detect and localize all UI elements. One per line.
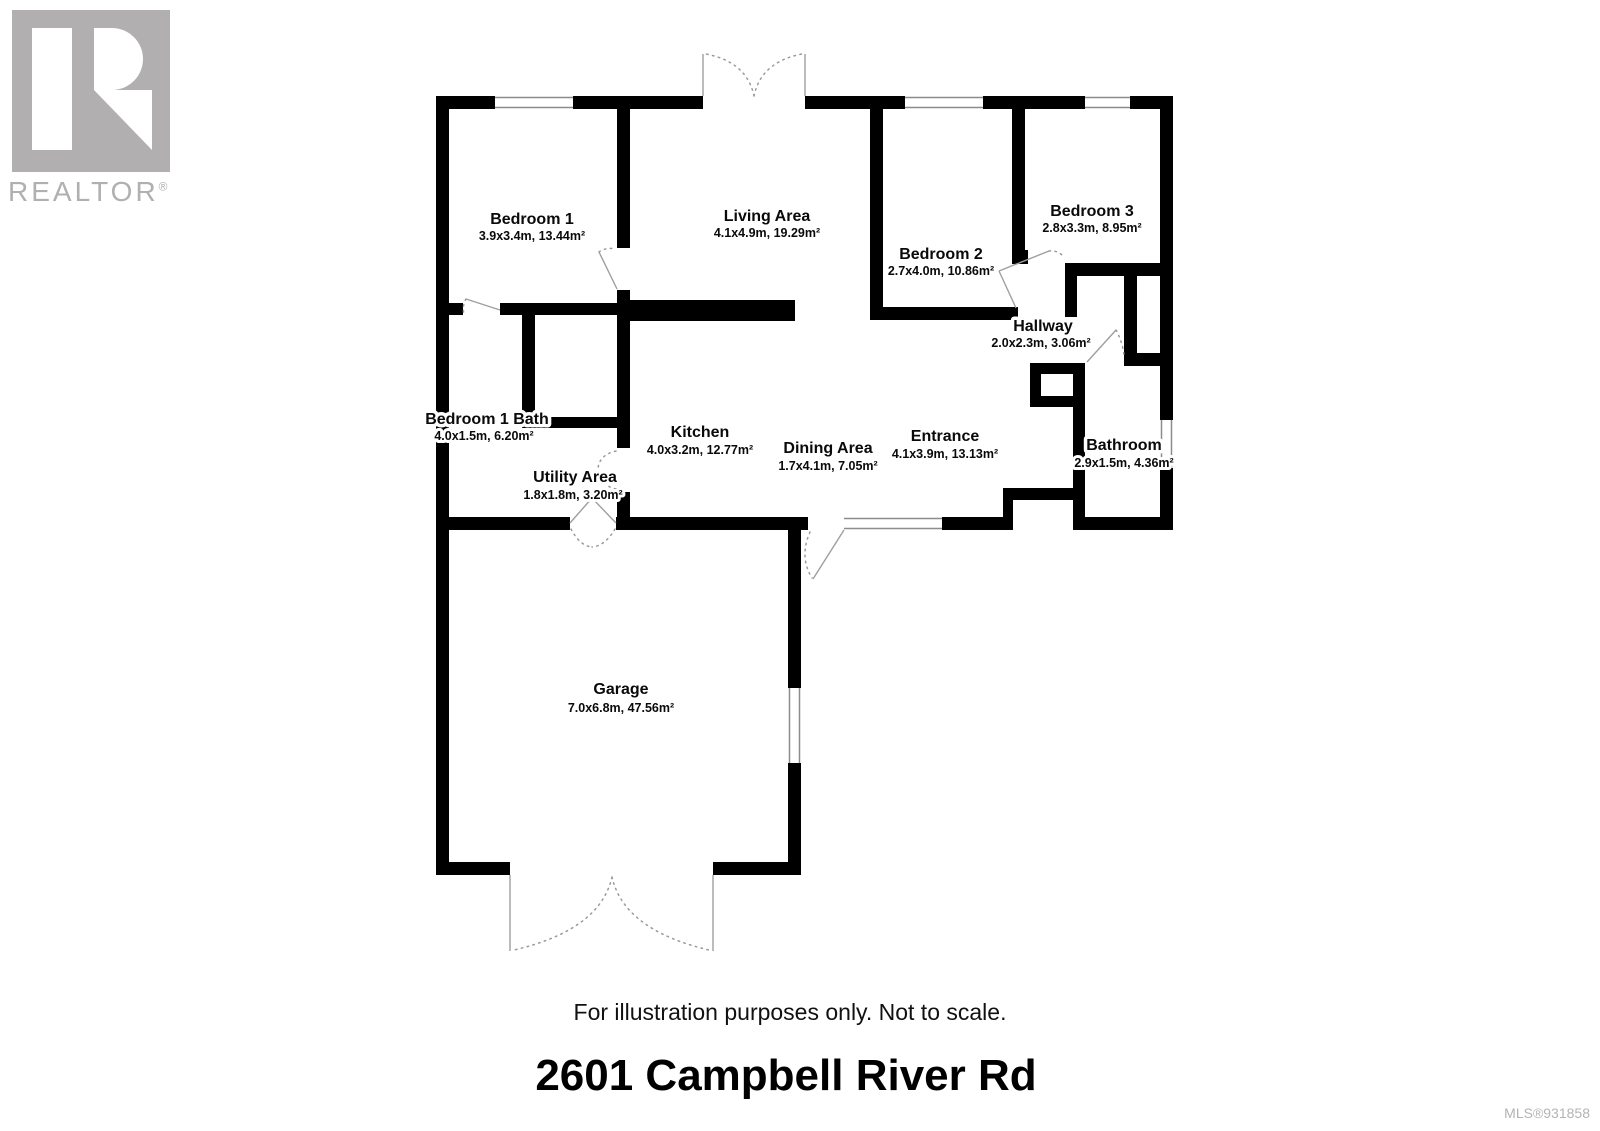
room-label-hallway: Hallway [1013,318,1073,335]
wall-segment [1124,276,1137,366]
logo-word: REALTOR [8,176,159,207]
door-swing-arc [706,54,802,96]
wall-segment [1160,96,1173,420]
bedroom-1-door [599,248,617,289]
floor-plan-page: Bedroom 1 3.9x3.4m, 13.44m² Living Area … [0,0,1600,1131]
room-label-bathroom: Bathroom [1086,437,1162,454]
room-dims-entrance: 4.1x3.9m, 13.13m² [892,447,998,461]
address-title: 2601 Campbell River Rd [0,1051,1572,1101]
room-label-garage: Garage [593,681,648,698]
half-wall [622,300,795,321]
wall-segment [500,303,617,315]
wall-segment [870,307,1018,320]
front-double-door [703,54,805,96]
wall-segment [713,862,801,875]
wall-segment [436,303,463,315]
room-label-entrance: Entrance [911,428,980,445]
room-label-kitchen: Kitchen [671,424,730,441]
registered-mark: ® [159,180,168,194]
door-leaf [599,252,617,289]
room-dims-utility-area: 1.8x1.8m, 3.20m² [523,488,622,502]
wall-segment [436,96,449,872]
bedroom-1-bath-door [463,299,500,314]
door-swing-arc [571,529,615,547]
wall-segment [942,517,1013,530]
window-bedroom-1 [495,96,573,109]
closet-interior [1041,374,1074,396]
wall-segment [788,517,801,688]
entrance-exterior-door [805,530,844,579]
room-dims-bedroom-2: 2.7x4.0m, 10.86m² [888,264,994,278]
room-dims-kitchen: 4.0x3.2m, 12.77m² [647,443,753,457]
door-swing-arc [805,532,812,578]
window-bedroom-2 [905,96,983,109]
wall-segment [1073,517,1173,530]
wall-segment [1012,109,1025,250]
wall-segment [788,763,801,875]
room-label-dining-area: Dining Area [783,440,872,457]
realtor-logo-text: REALTOR® [8,176,168,208]
room-dims-bedroom-3: 2.8x3.3m, 8.95m² [1042,221,1141,235]
door-swing-arc [1049,251,1063,256]
room-label-bedroom-1-bath: Bedroom 1 Bath [425,411,549,428]
door-swing-arc [1116,330,1124,356]
mls-number: MLS®931858 [1504,1105,1590,1121]
door-leaf [813,530,844,579]
room-dims-garage: 7.0x6.8m, 47.56m² [568,701,674,715]
garage-double-door [510,875,713,951]
room-label-bedroom-3: Bedroom 3 [1050,203,1134,220]
window-entrance [844,517,942,530]
door-leaf [466,299,500,310]
disclaimer-text: For illustration purposes only. Not to s… [0,999,1580,1026]
logo-r-stem [32,28,72,150]
wall-segment [573,96,703,109]
wall-segment [870,109,883,320]
door-leaf [510,875,713,951]
bedroom-2-door [999,251,1063,308]
wall-segment [1065,263,1173,276]
door-leaf [703,54,805,96]
wall-segment [805,96,905,109]
wall-segment [436,517,570,530]
room-dims-dining-area: 1.7x4.1m, 7.05m² [778,459,877,473]
room-label-bedroom-2: Bedroom 2 [899,246,983,263]
realtor-logo-icon [12,10,170,172]
door-swing-arc [463,299,466,314]
door-swing-arc [599,248,616,252]
room-dims-living-area: 4.1x4.9m, 19.29m² [714,226,820,240]
door-leaf [1087,330,1116,362]
wall-segment [617,109,630,248]
window-bedroom-3 [1085,96,1130,109]
wall-segment [1003,488,1085,500]
wall-segment [1065,263,1077,317]
wall-segment [1073,372,1085,530]
door-swing-arc [514,877,709,950]
wall-segment [983,96,1085,109]
window-garage [788,688,801,763]
wall-segment [1124,353,1173,366]
bathroom-door [1087,330,1124,362]
wall-segment [616,517,788,530]
room-dims-bedroom-1-bath: 4.0x1.5m, 6.20m² [434,429,533,443]
room-label-utility-area: Utility Area [533,469,617,486]
wall-segment [436,862,510,875]
floor-plan-drawing: Bedroom 1 3.9x3.4m, 13.44m² Living Area … [0,0,1600,1131]
room-label-bedroom-1: Bedroom 1 [490,211,574,228]
room-label-living-area: Living Area [724,208,811,225]
room-dims-hallway: 2.0x2.3m, 3.06m² [991,336,1090,350]
windows [495,96,1173,763]
utility-garage-door [570,498,616,547]
room-dims-bathroom: 2.9x1.5m, 4.36m² [1074,456,1173,470]
room-dims-bedroom-1: 3.9x3.4m, 13.44m² [479,229,585,243]
